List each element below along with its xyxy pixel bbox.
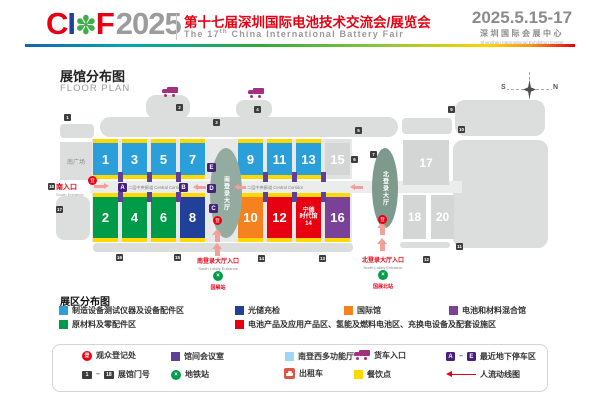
conference-swatch — [171, 352, 180, 361]
building-bump-west — [146, 95, 190, 119]
gate-number-18: 18 — [48, 183, 55, 190]
south-lobby-label: 南登录大厅 — [222, 176, 231, 211]
footer-item-food: 餐饮点 — [354, 369, 391, 380]
south-entrance-cn: 南入口 — [56, 182, 84, 192]
footer-label: 餐饮点 — [367, 369, 391, 380]
hall-11: 11 — [267, 143, 292, 175]
metro-station-north-label: 国展北站 — [345, 283, 421, 290]
building-gate1-strip — [60, 124, 94, 138]
corridor-label-west: 二层中央廊道 Central Corridor — [128, 185, 184, 191]
gate-number-16: 16 — [116, 254, 123, 261]
registration-icon: 登 — [82, 351, 92, 361]
north-lobby-entrance-label: 北登录大厅入口 North Lobby Entrance — [345, 255, 421, 270]
hall-service-strip — [151, 238, 176, 242]
gate-1-icon: 1 — [82, 371, 92, 379]
metro-station-south-icon: × — [213, 271, 223, 281]
legend-label: 电池产品及应用产品区、氢能及燃料电池区、充换电设备及配套设施区 — [248, 319, 496, 330]
legend-swatch-red — [235, 320, 244, 329]
conference-room-connector — [118, 192, 123, 202]
hall-16: 16 — [325, 197, 350, 238]
footer-item-taxi: 出租车 — [284, 368, 323, 379]
cibf-floor-plan-poster: CI✽F2025 第十七届深圳国际电池技术交流会/展览会 The 17th Ch… — [0, 0, 600, 400]
hall-9: 9 — [238, 143, 263, 175]
multifunction-swatch — [285, 352, 294, 361]
hall-service-strip — [180, 175, 205, 179]
flow-arrow-icon — [446, 371, 476, 378]
flow-arrow — [193, 184, 206, 191]
hall-service-strip — [180, 238, 205, 242]
gate-number-1: 1 — [64, 114, 71, 121]
conference-room-connector — [147, 192, 152, 202]
footer-label: 观众登记处 — [96, 350, 136, 361]
registration-icon: 登 — [88, 176, 97, 185]
hall-service-strip — [151, 175, 176, 179]
hall-service-strip — [325, 175, 350, 179]
truck-icon — [162, 87, 178, 98]
parking-marker-E: E — [207, 163, 216, 172]
flow-arrow — [350, 184, 363, 191]
taxi-icon — [284, 368, 295, 379]
building-top-band — [100, 117, 398, 137]
conference-room-connector — [176, 172, 181, 182]
legend-label: 光储充检 — [248, 305, 280, 316]
hall-service-strip — [238, 175, 263, 179]
hall-20: 20 — [431, 195, 454, 239]
footer-item-registration: 登观众登记处 — [82, 350, 136, 361]
hall-13: 13 — [296, 143, 321, 175]
hall-12: 12 — [267, 197, 292, 238]
footer-label: 地铁站 — [185, 369, 209, 380]
conference-room-connector — [292, 172, 297, 182]
south-entrance-label: 南入口 South Entrance — [56, 182, 84, 197]
conference-room-connector — [321, 192, 326, 202]
hall-10: 10 — [238, 197, 263, 238]
building-right-top-blob — [455, 100, 545, 136]
truck-icon — [354, 350, 370, 361]
gate-number-12: 12 — [423, 256, 430, 263]
hall-14: 宁德时代馆14 — [296, 197, 321, 238]
hall-service-strip — [122, 238, 147, 242]
gate-number-15: 15 — [174, 254, 181, 261]
gate-number-3: 3 — [213, 119, 220, 126]
hall-3: 3 — [122, 143, 147, 175]
gate-number-2: 2 — [176, 104, 183, 111]
hall-17: 17 — [403, 140, 449, 185]
gate-number-6: 6 — [351, 156, 358, 163]
footer-label: 货车入口 — [374, 350, 406, 361]
parking-e-icon: E — [467, 352, 476, 361]
footer-item-metro: ×地铁站 — [171, 369, 209, 380]
north-lobby-label: 北登录大厅 — [381, 171, 390, 206]
footer-label: 出租车 — [299, 368, 323, 379]
entrance-arrow-up — [377, 238, 388, 251]
gate-number-13: 13 — [319, 255, 326, 262]
hall-service-strip — [325, 238, 350, 242]
footer-label: 展馆门号 — [118, 369, 150, 380]
legend-item-manufacturing: 制造设备测试仪器及设备配件区 — [59, 305, 184, 316]
hall-6: 6 — [151, 197, 176, 238]
footer-item-truck: 货车入口 — [354, 350, 406, 361]
south-lobby-entrance-label: 南登录大厅入口 South Lobby Entrance — [180, 256, 256, 271]
footer-item-gate-numbers: 1–18展馆门号 — [82, 369, 150, 380]
gate-number-9: 9 — [448, 106, 455, 113]
metro-station-south-label: 国展站 — [180, 284, 256, 291]
footer-label: 人流动线图 — [480, 369, 520, 380]
conference-room-connector — [263, 192, 268, 202]
hall-service-strip — [296, 175, 321, 179]
hall-18: 18 — [403, 195, 426, 239]
building-right-main-blob — [453, 140, 548, 248]
hall-8: 8 — [180, 197, 205, 238]
conference-room-connector — [321, 172, 326, 182]
legend-item-battery-products: 电池产品及应用产品区、氢能及燃料电池区、充换电设备及配套设施区 — [235, 319, 496, 330]
hall-service-strip — [296, 238, 321, 242]
north-lobby-entrance-cn: 北登录大厅入口 — [345, 255, 421, 264]
conference-room-connector — [263, 172, 268, 182]
footer-label: 南登西多功能厅 — [298, 351, 354, 362]
legend-label: 制造设备测试仪器及设备配件区 — [72, 305, 184, 316]
legend-label: 国际馆 — [357, 305, 381, 316]
corridor-label-east: 二层中央廊道 Central Corridor — [247, 185, 303, 191]
gate-number-17: 17 — [56, 206, 63, 213]
parking-marker-D: D — [207, 184, 216, 193]
metro-station-north-icon: × — [378, 270, 388, 280]
legend-item-battery-material-mix: 电池和材料混合馆 — [449, 305, 526, 316]
legend-swatch-orange — [344, 306, 353, 315]
legend-item-storage-charging: 光储充检 — [235, 305, 280, 316]
hall-4: 4 — [122, 197, 147, 238]
metro-icon: × — [171, 370, 181, 380]
hall-15: 15 — [325, 143, 350, 175]
gate-number-7: 7 — [370, 151, 377, 158]
registration-icon: 登 — [378, 215, 387, 224]
hall-service-strip — [267, 175, 292, 179]
footer-item-flow: 人流动线图 — [446, 369, 520, 380]
hall-1: 1 — [93, 143, 118, 175]
building-bottom-band — [93, 243, 353, 252]
south-entrance-en: South Entrance — [56, 192, 84, 197]
building-strip-below-18 — [400, 242, 450, 248]
conference-room-connector — [147, 172, 152, 182]
hall-5: 5 — [151, 143, 176, 175]
legend-swatch-green — [59, 320, 68, 329]
footer-item-multifunction: 南登西多功能厅 — [285, 351, 354, 362]
south-lobby-entrance-cn: 南登录大厅入口 — [180, 256, 256, 265]
hall-service-strip — [93, 238, 118, 242]
hall-7: 7 — [180, 143, 205, 175]
parking-a-icon: A — [446, 352, 455, 361]
footer-item-conference: 馆间会议室 — [171, 351, 224, 362]
building-southwest-blob — [56, 196, 90, 240]
flow-arrow — [94, 183, 109, 190]
parking-marker-A: A — [118, 183, 127, 192]
registration-icon: 登 — [213, 216, 222, 225]
truck-icon — [248, 88, 264, 99]
legend-swatch-lightblue — [59, 306, 68, 315]
legend-label: 电池和材料混合馆 — [462, 305, 526, 316]
conference-room-connector — [176, 192, 181, 202]
legend-swatch-darkblue — [235, 306, 244, 315]
parking-marker-B: B — [179, 183, 188, 192]
building-strip-above-17 — [402, 118, 452, 134]
hall-2: 2 — [93, 197, 118, 238]
gate-18-icon: 18 — [104, 371, 114, 379]
south-plaza: 南广场 — [60, 142, 92, 180]
entrance-arrow-up — [212, 243, 223, 256]
legend-label: 原材料及零配件区 — [72, 319, 136, 330]
hall-service-strip — [238, 238, 263, 242]
floor-plan-map: 二层中央廊道 Central Corridor 二层中央廊道 Central C… — [0, 0, 600, 400]
gate-number-4: 4 — [254, 106, 261, 113]
legend-item-raw-materials: 原材料及零配件区 — [59, 319, 136, 330]
legend-swatch-purple — [449, 306, 458, 315]
gate-number-5: 5 — [355, 127, 362, 134]
flow-arrow — [234, 184, 246, 191]
food-swatch — [354, 370, 363, 379]
dash: – — [96, 371, 100, 378]
conference-room-connector — [118, 172, 123, 182]
footer-label: 馆间会议室 — [184, 351, 224, 362]
hall-service-strip — [267, 238, 292, 242]
hall-service-strip — [122, 175, 147, 179]
footer-item-parking: A–E最近地下停车区 — [446, 351, 536, 362]
south-plaza-label: 南广场 — [67, 157, 85, 166]
dash: – — [459, 353, 463, 360]
parking-marker-C: C — [209, 204, 218, 213]
conference-room-connector — [292, 192, 297, 202]
entrance-arrow-up — [212, 229, 223, 242]
footer-label: 最近地下停车区 — [480, 351, 536, 362]
gate-number-14: 14 — [258, 255, 265, 262]
legend-item-international: 国际馆 — [344, 305, 381, 316]
gate-number-10: 10 — [458, 126, 465, 133]
gate-number-11: 11 — [456, 243, 463, 250]
